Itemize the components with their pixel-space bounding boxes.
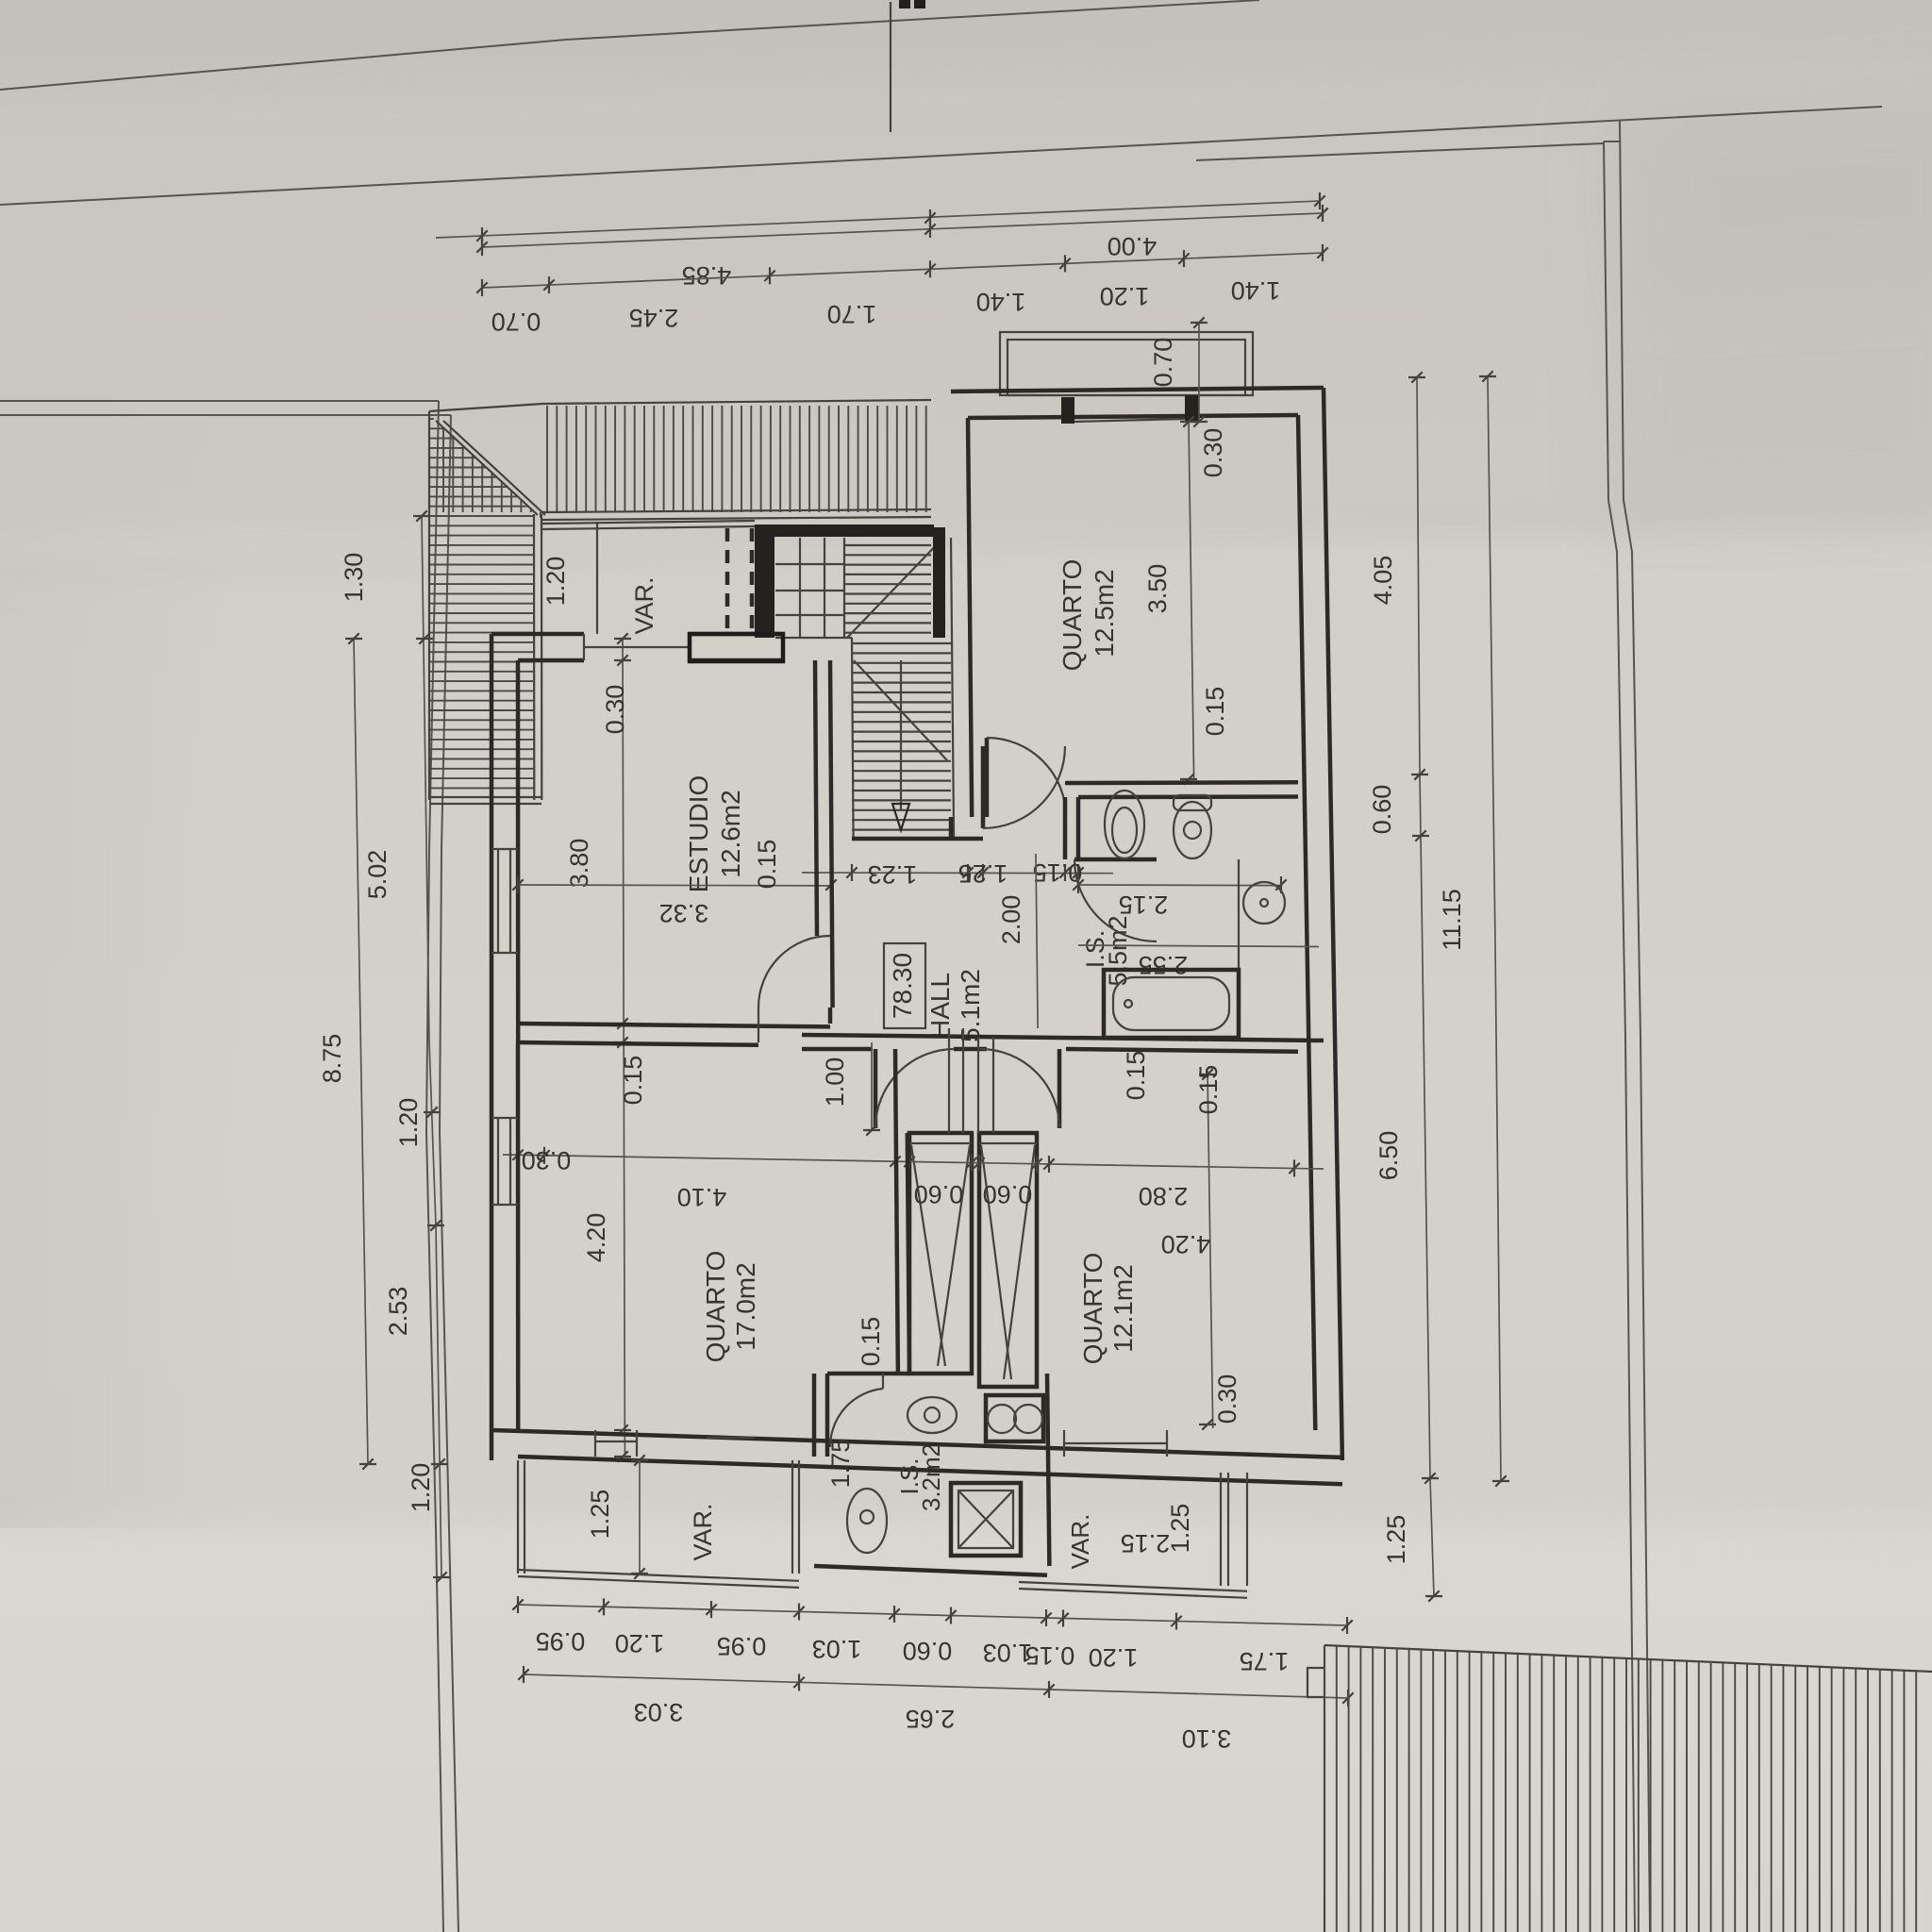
- svg-text:ESTUDIO: ESTUDIO: [684, 775, 713, 892]
- svg-text:0.30: 0.30: [1213, 1374, 1241, 1424]
- svg-text:HALL: HALL: [925, 973, 955, 1039]
- svg-text:3.50: 3.50: [1143, 564, 1172, 614]
- svg-text:0.15: 0.15: [1194, 1065, 1223, 1115]
- svg-text:1.25: 1.25: [1166, 1504, 1194, 1554]
- svg-text:2.53: 2.53: [384, 1287, 412, 1337]
- svg-text:3.80: 3.80: [565, 839, 593, 889]
- svg-text:0.30: 0.30: [1199, 428, 1227, 478]
- svg-text:12.6m2: 12.6m2: [716, 790, 745, 877]
- svg-text:78.30: 78.30: [888, 953, 917, 1019]
- svg-text:QUARTO: QUARTO: [1078, 1253, 1108, 1365]
- svg-text:0.15: 0.15: [619, 1056, 647, 1106]
- svg-text:0.15: 0.15: [857, 1317, 885, 1367]
- svg-text:5.1m2: 5.1m2: [956, 969, 985, 1042]
- svg-text:12.1m2: 12.1m2: [1108, 1264, 1138, 1352]
- svg-text:0.15: 0.15: [1025, 1641, 1075, 1670]
- svg-text:0.70: 0.70: [1149, 338, 1177, 388]
- svg-text:1.20: 1.20: [615, 1629, 665, 1657]
- svg-text:0.95: 0.95: [717, 1632, 767, 1660]
- svg-text:VAR.: VAR.: [630, 576, 658, 634]
- svg-text:4.10: 4.10: [677, 1183, 727, 1211]
- svg-text:17.0m2: 17.0m2: [731, 1262, 760, 1350]
- svg-text:1.20: 1.20: [1100, 282, 1150, 310]
- svg-text:3.32: 3.32: [659, 899, 709, 927]
- svg-text:0.60: 0.60: [914, 1180, 964, 1208]
- svg-text:1.30: 1.30: [340, 553, 368, 603]
- svg-text:1.20: 1.20: [394, 1098, 423, 1148]
- svg-text:2.55: 2.55: [1139, 951, 1189, 979]
- svg-text:4.20: 4.20: [582, 1213, 610, 1263]
- svg-text:0.30: 0.30: [522, 1146, 572, 1174]
- svg-text:1.25: 1.25: [586, 1490, 614, 1540]
- svg-text:1.03: 1.03: [983, 1639, 1033, 1667]
- svg-text:6.50: 6.50: [1374, 1131, 1403, 1181]
- svg-text:3.2m2: 3.2m2: [917, 1443, 945, 1511]
- svg-text:1.70: 1.70: [827, 300, 877, 328]
- svg-text:0.95: 0.95: [536, 1627, 586, 1656]
- svg-text:8.75: 8.75: [318, 1034, 346, 1084]
- svg-text:4.00: 4.00: [1108, 232, 1158, 260]
- svg-text:11.15: 11.15: [1438, 889, 1466, 951]
- svg-text:2.65: 2.65: [906, 1705, 956, 1733]
- svg-text:1.00: 1.00: [821, 1058, 849, 1108]
- svg-text:3.03: 3.03: [634, 1698, 684, 1726]
- svg-text:1.40: 1.40: [1231, 276, 1281, 305]
- svg-text:5.02: 5.02: [363, 850, 391, 900]
- svg-text:0.15: 0.15: [1122, 1051, 1150, 1101]
- svg-text:2.45: 2.45: [629, 304, 679, 332]
- svg-text:4.85: 4.85: [682, 261, 732, 290]
- svg-text:0.60: 0.60: [903, 1637, 953, 1665]
- svg-text:0.15: 0.15: [753, 840, 781, 890]
- svg-text:1.25: 1.25: [1382, 1515, 1410, 1565]
- svg-text:4.05: 4.05: [1369, 556, 1397, 606]
- svg-text:1.75: 1.75: [826, 1439, 855, 1489]
- svg-text:1.20: 1.20: [1089, 1643, 1139, 1672]
- svg-text:1.20: 1.20: [407, 1463, 435, 1513]
- svg-text:2.15: 2.15: [1119, 891, 1169, 919]
- svg-text:0.70: 0.70: [491, 308, 541, 336]
- svg-text:3.10: 3.10: [1182, 1724, 1232, 1753]
- svg-text:2.80: 2.80: [1139, 1182, 1189, 1210]
- svg-text:5.5m2: 5.5m2: [1104, 915, 1132, 986]
- svg-text:QUARTO: QUARTO: [701, 1251, 730, 1363]
- svg-text:0.60: 0.60: [1368, 785, 1396, 835]
- svg-text:4.20: 4.20: [1161, 1230, 1211, 1258]
- svg-text:1.40: 1.40: [976, 288, 1026, 316]
- svg-text:0.60: 0.60: [983, 1180, 1033, 1208]
- svg-text:1.25: 1.25: [958, 859, 1008, 888]
- svg-text:VAR.: VAR.: [689, 1503, 717, 1560]
- svg-text:12.5m2: 12.5m2: [1090, 569, 1119, 657]
- svg-text:1.20: 1.20: [541, 557, 570, 607]
- svg-text:QUARTO: QUARTO: [1058, 559, 1087, 672]
- svg-text:2.15: 2.15: [1121, 1529, 1171, 1557]
- svg-text:VAR.: VAR.: [1066, 1514, 1094, 1570]
- svg-text:2.00: 2.00: [997, 895, 1025, 945]
- svg-text:1.75: 1.75: [1240, 1647, 1290, 1675]
- svg-text:0.30: 0.30: [601, 685, 629, 735]
- svg-text:1.23: 1.23: [868, 860, 918, 889]
- svg-text:0.15: 0.15: [1201, 687, 1229, 737]
- svg-text:1.03: 1.03: [812, 1635, 862, 1663]
